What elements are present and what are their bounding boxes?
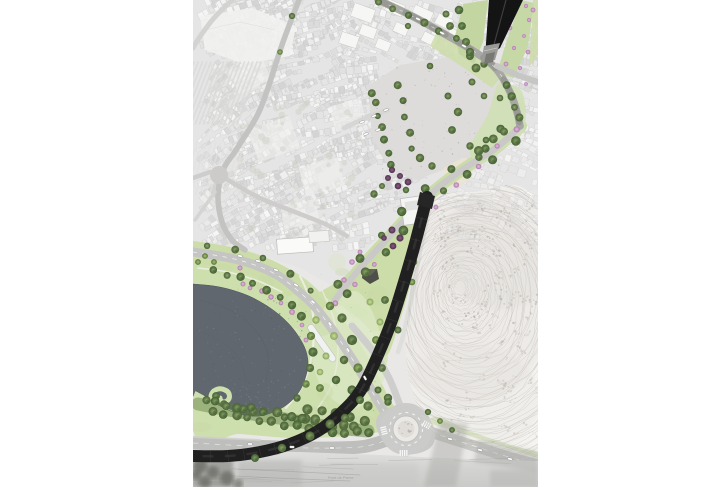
svg-text:Pont de Pierre: Pont de Pierre <box>328 475 354 480</box>
